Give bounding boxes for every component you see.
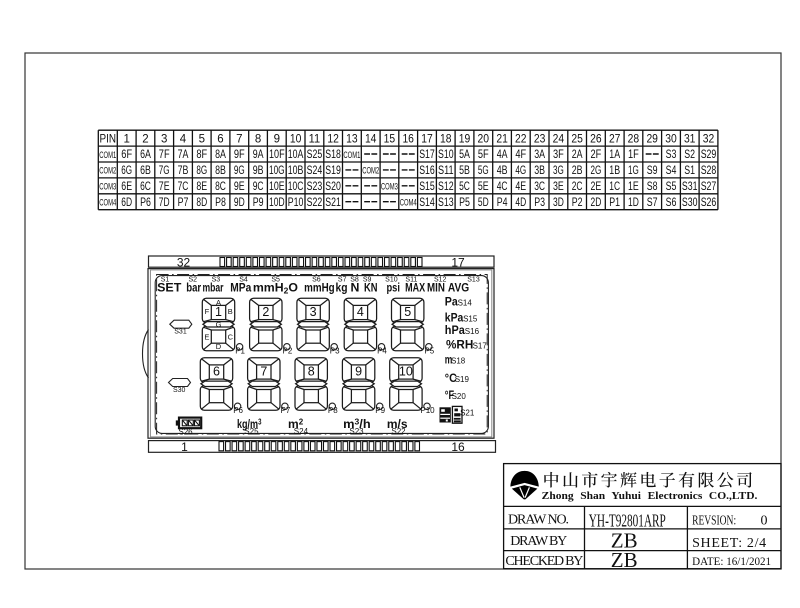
svg-text:S23: S23 [307, 181, 323, 193]
svg-text:7A: 7A [178, 149, 189, 161]
svg-text:S25: S25 [244, 427, 259, 436]
svg-text:S22: S22 [307, 197, 323, 209]
svg-text:S14: S14 [419, 197, 435, 209]
svg-text:COM4: COM4 [99, 198, 116, 208]
svg-text:S3: S3 [666, 149, 677, 161]
svg-text:kg: kg [336, 281, 348, 295]
svg-text:E: E [204, 333, 209, 342]
svg-text:8G: 8G [196, 165, 207, 177]
svg-text:9A: 9A [253, 149, 264, 161]
svg-text:S21: S21 [460, 409, 475, 418]
svg-text:SHEET: 2/4: SHEET: 2/4 [692, 536, 766, 551]
svg-text:3: 3 [310, 305, 317, 319]
svg-text:7F: 7F [159, 149, 170, 161]
svg-text:7B: 7B [178, 165, 189, 177]
svg-text:12: 12 [327, 133, 339, 145]
svg-text:4D: 4D [515, 197, 526, 209]
svg-text:S16: S16 [419, 165, 435, 177]
svg-text:18: 18 [440, 133, 452, 145]
svg-text:P5: P5 [459, 197, 470, 209]
svg-text:DRAW BY: DRAW BY [510, 534, 567, 549]
svg-text:S30: S30 [173, 387, 186, 394]
svg-text:7D: 7D [159, 197, 170, 209]
svg-text:S22: S22 [391, 427, 406, 436]
svg-text:P8: P8 [328, 406, 338, 415]
svg-text:1: 1 [123, 133, 129, 145]
svg-text:3B: 3B [534, 165, 545, 177]
svg-text:10: 10 [399, 365, 413, 379]
svg-text:5E: 5E [478, 181, 489, 193]
svg-text:2: 2 [142, 133, 148, 145]
svg-text:9: 9 [355, 365, 362, 379]
svg-text:S11: S11 [438, 165, 454, 177]
svg-text:9C: 9C [253, 181, 264, 193]
svg-text:5G: 5G [478, 165, 489, 177]
svg-text:KN: KN [364, 281, 378, 295]
svg-text:32: 32 [703, 133, 715, 145]
svg-text:6D: 6D [121, 197, 132, 209]
svg-text:5D: 5D [478, 197, 489, 209]
svg-text:N: N [351, 281, 360, 295]
svg-text:D: D [216, 342, 222, 351]
svg-text:P5: P5 [424, 346, 434, 355]
svg-text:S26: S26 [701, 197, 717, 209]
svg-text:7E: 7E [159, 181, 170, 193]
svg-text:9B: 9B [253, 165, 264, 177]
svg-text:4: 4 [357, 305, 364, 319]
svg-text:10E: 10E [269, 181, 285, 193]
svg-text:S23: S23 [349, 427, 364, 436]
svg-text:1E: 1E [628, 181, 639, 193]
svg-text:17: 17 [451, 255, 465, 269]
svg-text:4G: 4G [515, 165, 526, 177]
svg-text:P10: P10 [288, 197, 304, 209]
svg-text:S14: S14 [458, 299, 473, 308]
svg-text:S9: S9 [647, 165, 658, 177]
svg-text:5F: 5F [478, 149, 489, 161]
svg-text:6F: 6F [121, 149, 132, 161]
svg-text:20: 20 [478, 133, 490, 145]
svg-text:1B: 1B [609, 165, 620, 177]
svg-text:P7: P7 [178, 197, 189, 209]
svg-text:S17: S17 [473, 342, 488, 351]
svg-text:S30: S30 [682, 197, 698, 209]
svg-text:4E: 4E [515, 181, 526, 193]
svg-text:S27: S27 [701, 181, 717, 193]
svg-text:2B: 2B [572, 165, 583, 177]
svg-text:10C: 10C [288, 181, 304, 193]
svg-text:2F: 2F [591, 149, 602, 161]
svg-text:24: 24 [553, 133, 565, 145]
svg-text:10B: 10B [288, 165, 304, 177]
svg-text:5A: 5A [459, 149, 470, 161]
svg-text:2G: 2G [591, 165, 602, 177]
svg-text:S24: S24 [307, 165, 323, 177]
svg-text:COM2: COM2 [99, 166, 116, 176]
svg-text:8D: 8D [196, 197, 207, 209]
svg-text:8E: 8E [196, 181, 207, 193]
svg-text:27: 27 [609, 133, 621, 145]
svg-text:5: 5 [199, 133, 205, 145]
svg-text:7: 7 [260, 365, 267, 379]
svg-text:P3: P3 [534, 197, 545, 209]
svg-text:5: 5 [404, 305, 411, 319]
svg-text:6G: 6G [121, 165, 132, 177]
svg-text:S19: S19 [455, 375, 470, 384]
svg-text:P9: P9 [253, 197, 264, 209]
svg-text:S15: S15 [419, 181, 435, 193]
svg-text:hPa: hPa [445, 323, 465, 337]
svg-text:25: 25 [571, 133, 583, 145]
svg-text:S1: S1 [684, 165, 695, 177]
svg-text:S20: S20 [452, 392, 467, 401]
svg-text:MPa: MPa [230, 281, 251, 295]
svg-text:MAX: MAX [405, 281, 426, 295]
svg-text:S6: S6 [666, 197, 677, 209]
svg-text:S16: S16 [465, 327, 480, 336]
svg-text:COM2: COM2 [362, 166, 379, 176]
svg-text:S26: S26 [178, 427, 193, 436]
svg-text:7: 7 [236, 133, 242, 145]
svg-text:Zhong Shan Yuhui Electronics C: Zhong Shan Yuhui Electronics CO.,LTD. [542, 490, 758, 502]
svg-text:3F: 3F [553, 149, 564, 161]
svg-text:COM4: COM4 [400, 198, 417, 208]
svg-text:6B: 6B [140, 165, 151, 177]
svg-text:8C: 8C [215, 181, 226, 193]
svg-text:10F: 10F [269, 149, 285, 161]
svg-text:11: 11 [309, 133, 321, 145]
svg-text:CHECKED BY: CHECKED BY [505, 554, 583, 569]
svg-text:S2: S2 [684, 149, 695, 161]
svg-text:S8: S8 [647, 181, 658, 193]
svg-text:0: 0 [761, 514, 768, 529]
svg-text:4: 4 [180, 133, 187, 145]
svg-text:2C: 2C [572, 181, 583, 193]
svg-text:6E: 6E [121, 181, 132, 193]
svg-text:3C: 3C [534, 181, 545, 193]
svg-text:1C: 1C [609, 181, 620, 193]
svg-text:1: 1 [181, 440, 188, 454]
svg-text:6C: 6C [140, 181, 151, 193]
svg-text:10A: 10A [288, 149, 304, 161]
svg-text:9E: 9E [234, 181, 245, 193]
svg-text:9F: 9F [234, 149, 245, 161]
svg-text:S10: S10 [438, 149, 454, 161]
svg-text:6: 6 [213, 365, 220, 379]
svg-text:1F: 1F [628, 149, 639, 161]
svg-text:6A: 6A [140, 149, 151, 161]
svg-text:13: 13 [346, 133, 358, 145]
svg-text:S7: S7 [647, 197, 658, 209]
svg-text:S29: S29 [701, 149, 717, 161]
svg-text:3G: 3G [553, 165, 564, 177]
svg-text:4A: 4A [497, 149, 508, 161]
svg-text:P7: P7 [281, 406, 291, 415]
svg-text:S12: S12 [438, 181, 454, 193]
svg-text:S19: S19 [325, 165, 341, 177]
svg-text:5B: 5B [459, 165, 470, 177]
svg-text:1D: 1D [628, 197, 639, 209]
svg-text:S21: S21 [325, 197, 341, 209]
svg-text:%RH: %RH [446, 338, 473, 352]
svg-text:S31: S31 [682, 181, 698, 193]
svg-text:A: A [216, 298, 221, 307]
svg-text:8: 8 [308, 365, 315, 379]
svg-text:COM1: COM1 [343, 150, 360, 160]
svg-text:26: 26 [590, 133, 602, 145]
svg-text:P8: P8 [215, 197, 226, 209]
svg-text:5C: 5C [459, 181, 470, 193]
svg-text:AVG: AVG [448, 281, 469, 295]
svg-text:psi: psi [386, 281, 400, 295]
svg-text:S5: S5 [666, 181, 677, 193]
svg-text:9: 9 [274, 133, 280, 145]
svg-text:8F: 8F [196, 149, 207, 161]
svg-text:P1: P1 [235, 346, 245, 355]
svg-text:S28: S28 [701, 165, 717, 177]
svg-text:4F: 4F [515, 149, 526, 161]
svg-text:P9: P9 [375, 406, 385, 415]
svg-text:mmHg: mmHg [304, 281, 335, 295]
svg-text:2: 2 [262, 305, 269, 319]
svg-text:8A: 8A [215, 149, 226, 161]
svg-text:28: 28 [628, 133, 640, 145]
svg-text:P6: P6 [233, 406, 243, 415]
svg-text:S18: S18 [325, 149, 341, 161]
svg-text:PIN: PIN [100, 133, 117, 145]
svg-text:8: 8 [255, 133, 261, 145]
svg-text:16: 16 [451, 440, 465, 454]
svg-text:3E: 3E [553, 181, 564, 193]
svg-text:15: 15 [384, 133, 396, 145]
svg-text:S4: S4 [666, 165, 677, 177]
svg-text:P10: P10 [420, 406, 435, 415]
svg-text:COM3: COM3 [99, 182, 116, 192]
svg-text:ZB: ZB [611, 548, 638, 572]
svg-text:DATE: 16/1/2021: DATE: 16/1/2021 [692, 554, 771, 568]
svg-text:30: 30 [665, 133, 677, 145]
svg-text:31: 31 [684, 133, 696, 145]
svg-text:10: 10 [290, 133, 302, 145]
svg-text:P2: P2 [572, 197, 583, 209]
svg-text:F: F [205, 307, 210, 316]
svg-text:7C: 7C [178, 181, 189, 193]
svg-text:REVSION:: REVSION: [692, 514, 736, 529]
svg-text:COM3: COM3 [381, 182, 398, 192]
svg-text:S18: S18 [451, 357, 466, 366]
svg-text:S31: S31 [174, 329, 187, 336]
svg-text:1: 1 [215, 305, 222, 319]
svg-text:P1: P1 [609, 197, 620, 209]
svg-text:Pa: Pa [445, 295, 458, 309]
svg-text:2D: 2D [591, 197, 602, 209]
svg-text:9D: 9D [234, 197, 245, 209]
svg-text:1A: 1A [609, 149, 620, 161]
svg-text:mmH2O: mmH2O [253, 281, 298, 296]
svg-text:23: 23 [534, 133, 546, 145]
svg-text:7G: 7G [159, 165, 170, 177]
svg-text:P4: P4 [497, 197, 508, 209]
svg-text:4C: 4C [497, 181, 508, 193]
svg-text:4B: 4B [497, 165, 508, 177]
svg-text:S20: S20 [325, 181, 341, 193]
svg-text:bar: bar [186, 281, 201, 295]
svg-text:17: 17 [421, 133, 433, 145]
svg-text:P3: P3 [330, 346, 340, 355]
svg-text:C: C [228, 333, 234, 342]
svg-text:16: 16 [402, 133, 414, 145]
svg-text:19: 19 [459, 133, 471, 145]
svg-text:3A: 3A [534, 149, 545, 161]
svg-text:21: 21 [496, 133, 508, 145]
svg-text:P6: P6 [140, 197, 151, 209]
svg-text:P2: P2 [283, 346, 293, 355]
svg-text:SET: SET [157, 281, 182, 295]
svg-text:DRAW NO.: DRAW NO. [508, 512, 569, 527]
svg-text:10G: 10G [269, 165, 285, 177]
svg-text:3: 3 [161, 133, 167, 145]
svg-text:S13: S13 [438, 197, 454, 209]
svg-text:2A: 2A [572, 149, 583, 161]
svg-text:S15: S15 [463, 315, 478, 324]
svg-text:mbar: mbar [203, 281, 224, 295]
svg-text:14: 14 [365, 133, 377, 145]
svg-text:S24: S24 [294, 427, 309, 436]
svg-text:29: 29 [646, 133, 658, 145]
svg-text:S17: S17 [419, 149, 435, 161]
svg-text:P4: P4 [377, 346, 387, 355]
svg-text:S25: S25 [307, 149, 323, 161]
svg-text:MIN: MIN [427, 281, 445, 295]
svg-text:32: 32 [177, 255, 191, 269]
svg-text:6: 6 [217, 133, 223, 145]
svg-text:8B: 8B [215, 165, 226, 177]
svg-text:10D: 10D [269, 197, 285, 209]
svg-text:COM1: COM1 [99, 150, 116, 160]
svg-text:2E: 2E [591, 181, 602, 193]
svg-text:3D: 3D [553, 197, 564, 209]
svg-text:1G: 1G [628, 165, 639, 177]
svg-text:YH-T92801ARP: YH-T92801ARP [589, 511, 666, 531]
svg-text:G: G [216, 320, 222, 329]
svg-text:B: B [228, 307, 233, 316]
svg-text:22: 22 [515, 133, 527, 145]
svg-text:9G: 9G [234, 165, 245, 177]
